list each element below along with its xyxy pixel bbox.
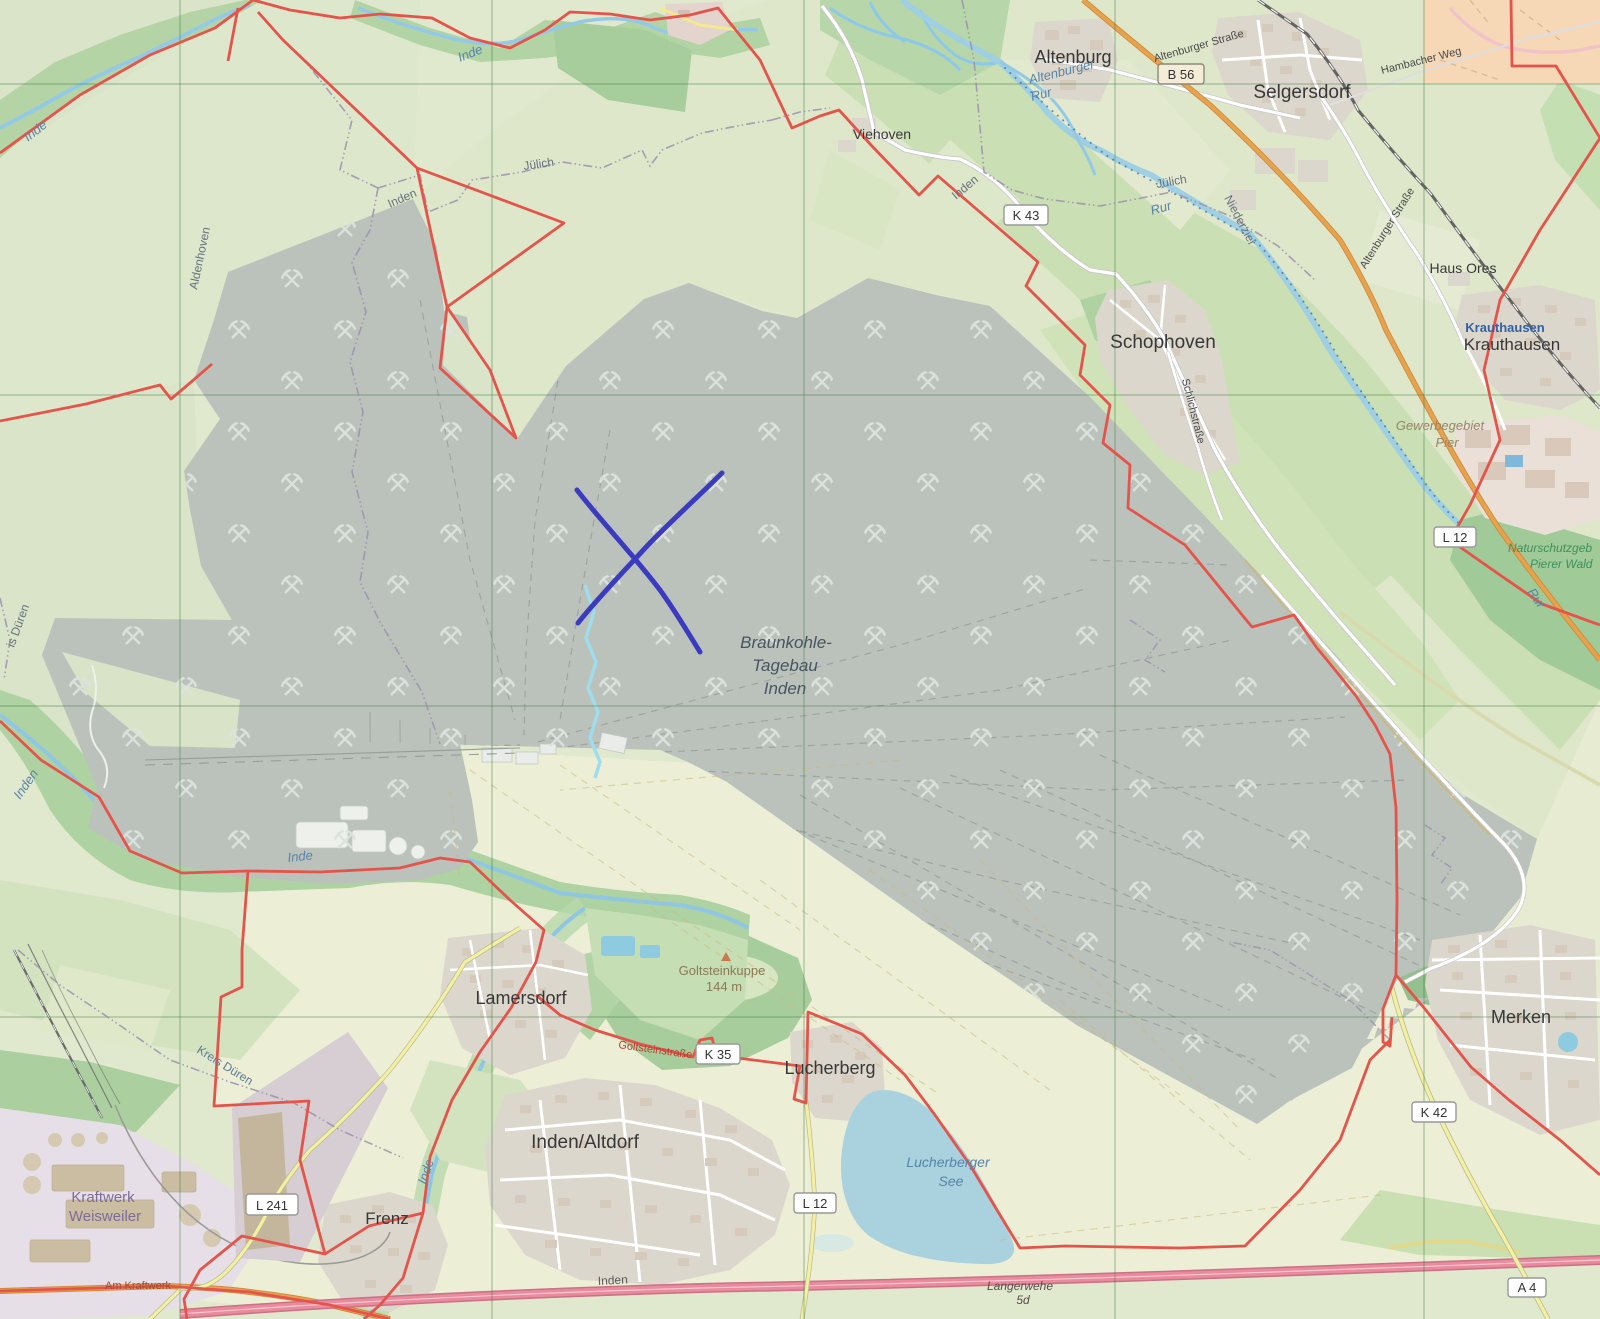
svg-text:Am Kraftwerk: Am Kraftwerk: [105, 1280, 172, 1292]
svg-text:Naturschutzgeb: Naturschutzgeb: [1508, 541, 1592, 555]
svg-text:Schophoven: Schophoven: [1110, 332, 1216, 353]
svg-text:Lucherberger: Lucherberger: [906, 1154, 991, 1170]
svg-text:Kraftwerk: Kraftwerk: [71, 1189, 135, 1206]
svg-text:Gewerbegebiet: Gewerbegebiet: [1396, 418, 1486, 433]
svg-text:Merken: Merken: [1491, 1007, 1551, 1027]
svg-text:L 12: L 12: [1443, 530, 1468, 545]
svg-text:K 42: K 42: [1421, 1105, 1448, 1120]
svg-text:Selgersdorf: Selgersdorf: [1253, 82, 1351, 103]
svg-text:5d: 5d: [1016, 1293, 1030, 1307]
svg-text:Braunkohle-: Braunkohle-: [740, 633, 832, 652]
svg-text:Krauthausen: Krauthausen: [1464, 335, 1560, 354]
svg-text:Pierer Wald: Pierer Wald: [1530, 557, 1593, 571]
svg-text:Lamersdorf: Lamersdorf: [475, 988, 567, 1008]
svg-text:Frenz: Frenz: [365, 1209, 408, 1228]
svg-text:144 m: 144 m: [706, 979, 742, 994]
svg-text:Tagebau: Tagebau: [752, 656, 818, 675]
svg-text:See: See: [939, 1173, 964, 1189]
svg-text:Inde: Inde: [287, 847, 314, 865]
svg-text:Haus Ores: Haus Ores: [1430, 260, 1497, 276]
svg-text:Weisweiler: Weisweiler: [69, 1208, 141, 1225]
svg-text:Inden: Inden: [597, 1272, 628, 1288]
svg-text:Pier: Pier: [1435, 435, 1459, 450]
svg-text:Langerwehe: Langerwehe: [987, 1279, 1053, 1293]
svg-text:Krauthausen: Krauthausen: [1465, 320, 1545, 335]
svg-text:Inden/Altdorf: Inden/Altdorf: [531, 1132, 639, 1153]
svg-text:K 35: K 35: [705, 1047, 732, 1062]
svg-text:Goltsteinkuppe: Goltsteinkuppe: [679, 963, 766, 978]
svg-text:L 241: L 241: [256, 1198, 288, 1213]
svg-text:K 43: K 43: [1013, 208, 1040, 223]
svg-text:A 4: A 4: [1518, 1280, 1537, 1295]
svg-text:Viehoven: Viehoven: [853, 126, 911, 142]
svg-text:B 56: B 56: [1168, 67, 1195, 82]
svg-text:L 12: L 12: [803, 1196, 828, 1211]
svg-text:Inden: Inden: [764, 679, 807, 698]
svg-text:Lucherberg: Lucherberg: [784, 1058, 875, 1078]
